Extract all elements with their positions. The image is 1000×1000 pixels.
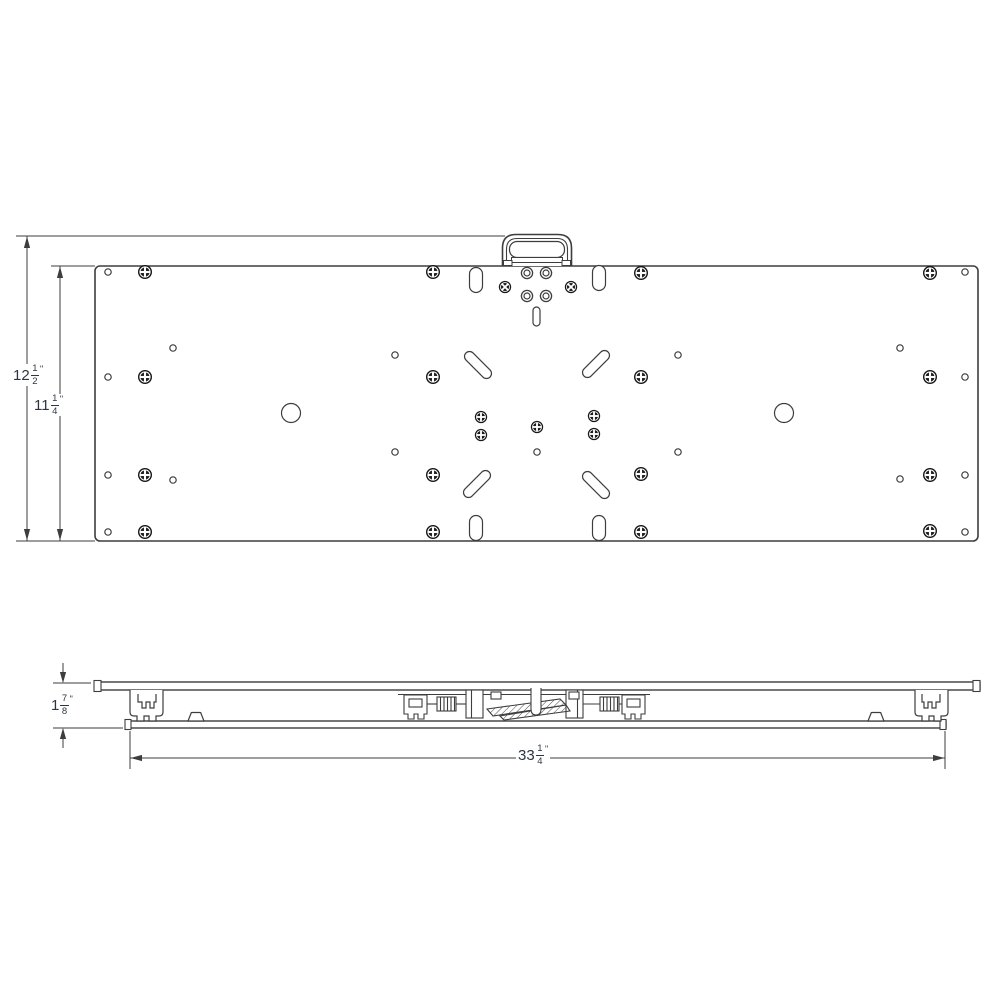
dim-fraction: 1 2 xyxy=(31,364,39,386)
screw-icon xyxy=(635,526,648,539)
dim-label-profile-height: 1 7 8 " xyxy=(49,694,75,716)
pilot-hole xyxy=(392,449,398,455)
inch-mark: " xyxy=(545,745,548,754)
rail-stop xyxy=(868,713,884,722)
dim-whole: 11 xyxy=(34,398,50,413)
screw-icon xyxy=(635,371,648,384)
vertical-slot xyxy=(593,266,606,291)
ring-hole xyxy=(521,290,532,301)
screw-icon xyxy=(588,410,599,421)
spring-icon xyxy=(437,697,456,711)
dim-whole: 1 xyxy=(51,698,59,713)
dim-fraction: 1 4 xyxy=(536,744,544,766)
pilot-hole xyxy=(105,269,111,275)
rail-stop xyxy=(188,713,204,722)
left-roller-bracket xyxy=(130,690,163,721)
right-clamp-detail xyxy=(627,699,640,707)
screw-icon xyxy=(635,468,648,481)
screw-icon xyxy=(924,525,937,538)
screw-icon xyxy=(475,429,486,440)
pilot-hole xyxy=(962,529,968,535)
large-hole xyxy=(282,404,301,423)
latch-screw-tab xyxy=(569,692,579,699)
arrowhead xyxy=(60,728,66,739)
large-hole xyxy=(775,404,794,423)
dim-whole: 33 xyxy=(518,748,535,763)
pilot-hole xyxy=(962,472,968,478)
pilot-hole xyxy=(170,477,176,483)
left-hanger xyxy=(466,690,483,718)
pilot-hole xyxy=(105,529,111,535)
rail-end-cap xyxy=(125,720,131,730)
handle-base-bar xyxy=(512,258,563,263)
handle-grip-slot xyxy=(510,242,565,258)
dim-fraction: 1 4 xyxy=(51,394,59,416)
vertical-slot xyxy=(593,516,606,541)
arrowhead xyxy=(131,755,143,761)
ring-hole xyxy=(540,290,551,301)
screw-icon xyxy=(427,371,440,384)
screw-icon xyxy=(588,428,599,439)
small-slot xyxy=(533,307,540,326)
spring-icon xyxy=(600,697,619,711)
arrowhead xyxy=(57,529,63,541)
screw-icon xyxy=(924,267,937,280)
side-view xyxy=(94,681,980,730)
latch-mechanism xyxy=(398,688,650,720)
arrowhead xyxy=(57,267,63,279)
pilot-hole xyxy=(105,472,111,478)
handle-right-foot xyxy=(562,261,571,266)
screw-icon xyxy=(139,371,152,384)
screw-icon xyxy=(531,421,542,432)
pilot-hole xyxy=(962,269,968,275)
inch-mark: " xyxy=(40,365,43,374)
screw-icon xyxy=(427,469,440,482)
screw-icon xyxy=(475,411,486,422)
arrowhead xyxy=(24,237,30,249)
arrowhead xyxy=(24,529,30,541)
pilot-hole xyxy=(105,374,111,380)
dim-label-overall-width: 33 1 4 " xyxy=(516,744,550,766)
handle-left-foot xyxy=(504,261,513,266)
screw-icon xyxy=(139,526,152,539)
arrowhead xyxy=(60,672,66,683)
dim-fraction: 7 8 xyxy=(60,694,68,716)
inch-mark: " xyxy=(70,695,73,704)
arrowhead xyxy=(933,755,945,761)
inch-mark: " xyxy=(60,395,63,404)
left-clamp-detail xyxy=(409,699,422,707)
side-bottom-rail xyxy=(126,721,946,728)
dim-whole: 12 xyxy=(13,368,30,383)
latch-screw-tab xyxy=(491,692,501,699)
technical-drawing: 12 1 2 " 11 1 4 " 1 7 8 " 33 1 4 " xyxy=(0,0,1000,1000)
pilot-hole xyxy=(675,352,681,358)
screw-icon xyxy=(924,469,937,482)
center-pin xyxy=(531,688,541,715)
handle xyxy=(503,235,572,267)
pilot-hole xyxy=(534,449,540,455)
dim-label-plate-height: 11 1 4 " xyxy=(32,394,65,416)
screw-icon xyxy=(427,526,440,539)
right-roller-bracket xyxy=(915,690,948,721)
top-view xyxy=(95,235,978,542)
plate-end-cap xyxy=(94,681,101,692)
drawing-canvas xyxy=(0,0,1000,1000)
pilot-hole xyxy=(962,374,968,380)
screw-icon xyxy=(427,266,440,279)
ring-hole xyxy=(521,267,532,278)
vertical-slot xyxy=(470,268,483,293)
pilot-hole xyxy=(170,345,176,351)
pilot-hole xyxy=(392,352,398,358)
pilot-hole xyxy=(675,449,681,455)
screw-icon xyxy=(139,266,152,279)
screw-icon xyxy=(635,267,648,280)
plate-end-cap xyxy=(973,681,980,692)
pilot-hole xyxy=(897,345,903,351)
dim-label-overall-height: 12 1 2 " xyxy=(11,364,45,386)
screw-icon xyxy=(139,469,152,482)
ring-hole xyxy=(540,267,551,278)
pilot-hole xyxy=(897,476,903,482)
screw-icon xyxy=(924,371,937,384)
vertical-slot xyxy=(470,516,483,541)
